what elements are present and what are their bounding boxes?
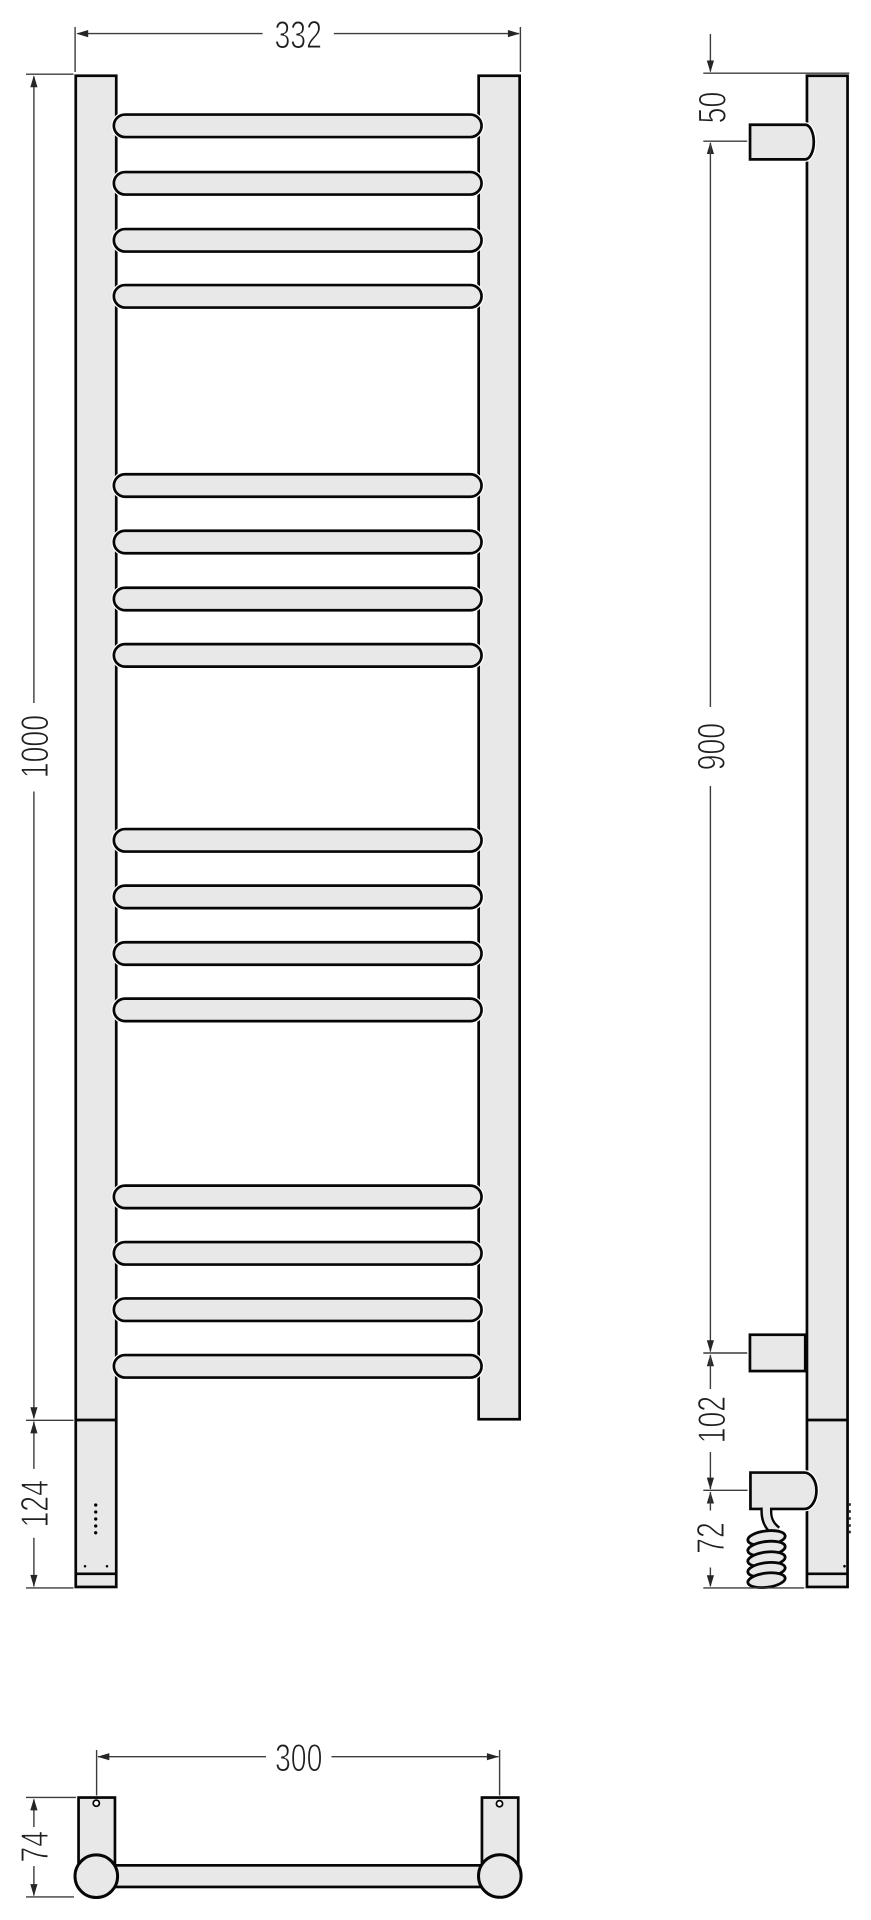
svg-text:300: 300 bbox=[275, 1737, 322, 1780]
svg-text:900: 900 bbox=[690, 723, 733, 770]
svg-text:72: 72 bbox=[690, 1522, 733, 1554]
svg-text:74: 74 bbox=[14, 1831, 57, 1863]
svg-text:50: 50 bbox=[691, 92, 734, 124]
svg-text:102: 102 bbox=[691, 1396, 734, 1443]
svg-text:1000: 1000 bbox=[14, 715, 57, 778]
svg-text:332: 332 bbox=[274, 14, 321, 57]
svg-text:124: 124 bbox=[14, 1480, 57, 1527]
